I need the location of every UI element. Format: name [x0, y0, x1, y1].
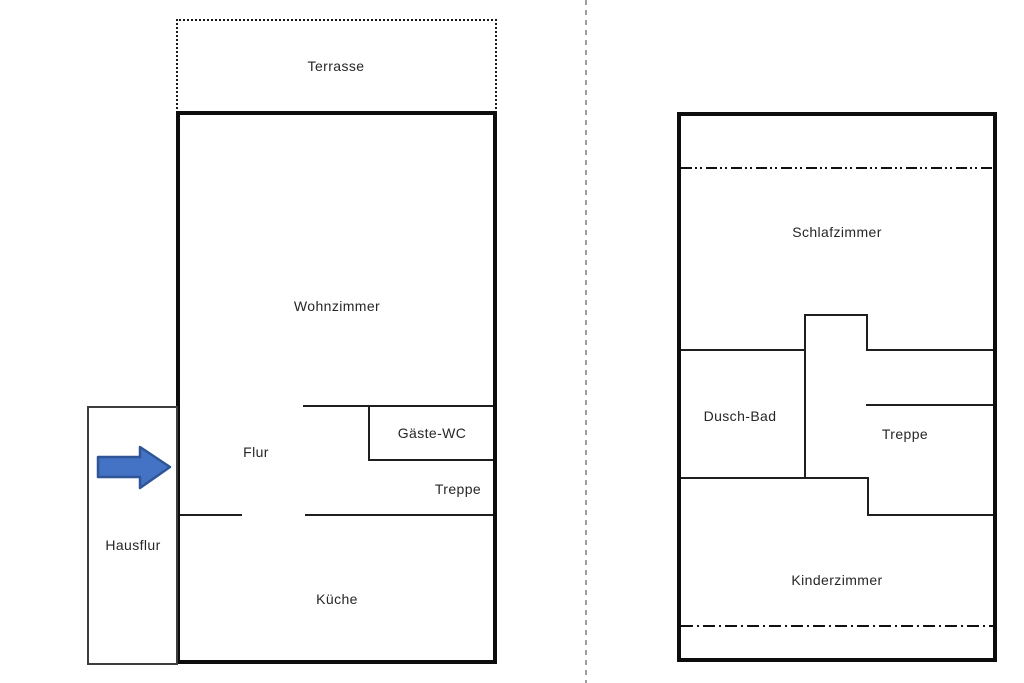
- dusch-bad-south-wall: [681, 477, 869, 479]
- schlafzimmer-south-wall-right: [866, 349, 993, 351]
- chimney-north-wall: [804, 314, 868, 316]
- upper-floor-plan: Schlafzimmer Dusch-Bad Treppe Kinderzimm…: [0, 0, 1024, 683]
- treppe-landing-line: [866, 404, 993, 406]
- treppe-step-wall: [867, 477, 869, 516]
- dusch-bad-label: Dusch-Bad: [704, 408, 777, 424]
- dusch-bad-east-wall: [804, 314, 806, 479]
- roof-line-north: [681, 167, 993, 169]
- chimney-east-wall: [866, 314, 868, 351]
- treppe-upper-label: Treppe: [882, 426, 928, 442]
- roof-line-south: [681, 625, 993, 627]
- treppe-south-wall: [867, 514, 993, 516]
- kinderzimmer-label: Kinderzimmer: [791, 572, 882, 588]
- schlafzimmer-south-wall-left: [681, 349, 805, 351]
- floor-plan-canvas: Terrasse Wohnzimmer Flur Gäste-WC Treppe…: [0, 0, 1024, 683]
- schlafzimmer-label: Schlafzimmer: [792, 224, 882, 240]
